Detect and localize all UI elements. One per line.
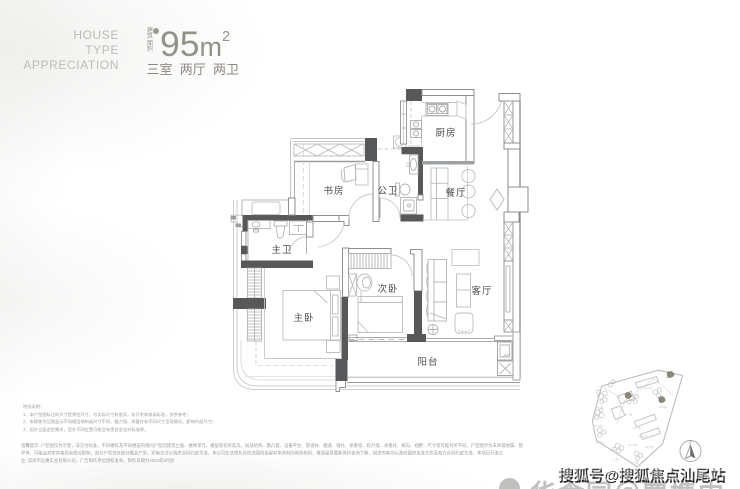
svg-text:主卧: 主卧 (293, 312, 314, 324)
svg-text:公卫: 公卫 (377, 186, 398, 197)
svg-text:2B-1支2: 2B-1支2 (632, 426, 642, 430)
svg-text:客厅: 客厅 (471, 285, 492, 297)
svg-text:1B-3栋: 1B-3栋 (595, 405, 604, 409)
svg-text:书房: 书房 (323, 185, 344, 197)
svg-text:3B7支8: 3B7支8 (595, 441, 605, 445)
svg-text:主卫: 主卫 (271, 244, 292, 256)
svg-text:次卧: 次卧 (377, 283, 398, 295)
svg-text:2B-1支8: 2B-1支8 (628, 443, 638, 447)
svg-text:厨房: 厨房 (435, 127, 456, 139)
svg-text:北: 北 (689, 440, 693, 445)
svg-text:阳台: 阳台 (417, 356, 438, 368)
svg-text:餐厅: 餐厅 (445, 187, 466, 199)
svg-text:2B7栋6: 2B7栋6 (658, 405, 668, 409)
svg-text:2B-4栋: 2B-4栋 (624, 412, 633, 416)
svg-text:1-6栋: 1-6栋 (612, 458, 619, 462)
svg-text:2B-1支9: 2B-1支9 (593, 424, 603, 428)
svg-text:2B7支8: 2B7支8 (645, 445, 655, 449)
svg-text:2B-1支5: 2B-1支5 (639, 434, 649, 438)
svg-text:2B-1栋: 2B-1栋 (644, 386, 653, 390)
